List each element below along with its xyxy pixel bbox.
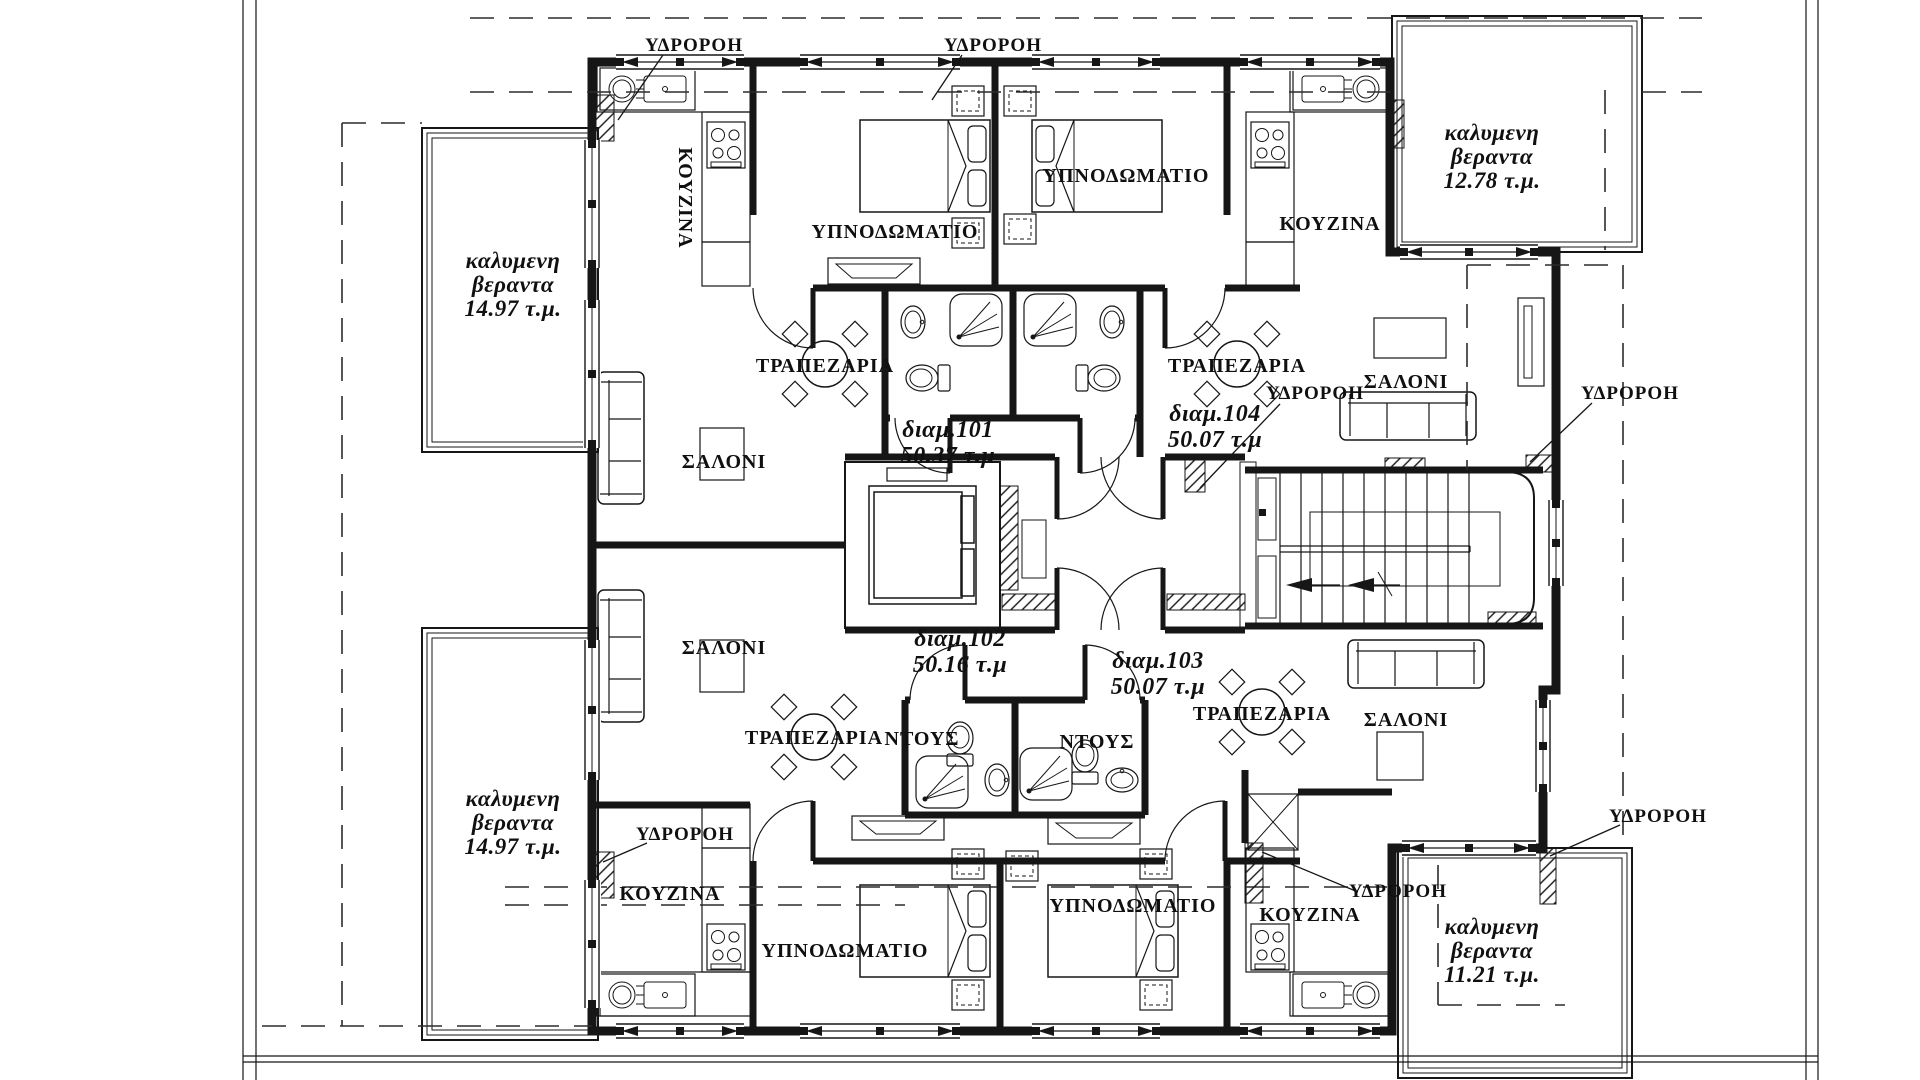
wall-hatch-pier — [1002, 594, 1055, 610]
room-label-bedroom: ΥΠΝΟΔΩΜΑΤΙΟ — [812, 221, 979, 243]
veranda-covered: καλυμενη — [466, 786, 561, 811]
tv-screen — [1524, 306, 1532, 378]
window — [1032, 1022, 1160, 1040]
veranda-label-left-bottom: καλυμενη βεραντα 14.97 τ.μ. — [465, 786, 562, 859]
room-label-shower: ΝΤΟΥΣ — [1060, 731, 1135, 753]
room-label-kitchen: ΚΟΥΖΙΝΑ — [619, 883, 720, 905]
wall-hatch-pier — [592, 95, 614, 141]
room-label-dining: ΤΡΑΠΕΖΑΡΙΑ — [1193, 703, 1331, 725]
leader-line — [1530, 403, 1592, 462]
room-label-bedroom: ΥΠΝΟΔΩΜΑΤΙΟ — [762, 940, 929, 962]
window — [583, 880, 601, 1008]
window — [1402, 839, 1536, 857]
apartment-label-104: διαμ.104 50.07 τ.μ — [1168, 401, 1263, 453]
downspout-label: ΥΔΡΟΡΟΗ — [636, 824, 734, 845]
veranda-covered: καλυμενη — [1445, 914, 1540, 939]
window — [1534, 700, 1552, 792]
veranda-covered: καλυμενη — [1445, 120, 1540, 145]
bed-apartment-101 — [860, 120, 990, 212]
door-swing — [753, 801, 813, 861]
window — [800, 1022, 960, 1040]
window — [800, 53, 960, 71]
nightstand — [952, 980, 984, 1010]
tv-on-dresser — [860, 821, 936, 834]
leader-line — [1550, 825, 1620, 856]
tv-on-dresser — [836, 264, 912, 278]
wall-hatch-pier — [1000, 486, 1018, 590]
wall-hatch-pier — [1526, 455, 1556, 472]
veranda-area: 14.97 τ.μ. — [465, 296, 562, 321]
room-label-kitchen: ΚΟΥΖΙΝΑ — [674, 147, 696, 248]
apartment-name: διαμ.103 — [1112, 648, 1204, 674]
room-label-bedroom: ΥΠΝΟΔΩΜΑΤΙΟ — [1050, 895, 1217, 917]
downspout-label: ΥΔΡΟΡΟΗ — [1581, 383, 1679, 404]
room-label-living: ΣΑΛΟΝΙ — [682, 451, 766, 473]
room-label-living: ΣΑΛΟΝΙ — [1364, 371, 1448, 393]
window — [583, 140, 601, 268]
staircase — [1240, 462, 1534, 628]
coffee-table-103 — [1377, 732, 1423, 780]
wall-hatch-pier — [1540, 848, 1556, 904]
sofa-103 — [1348, 640, 1484, 688]
apartment-label-102: διαμ.102 50.16 τ.μ — [913, 626, 1008, 678]
room-label-kitchen: ΚΟΥΖΙΝΑ — [1259, 904, 1360, 926]
sheet-border — [243, 0, 1818, 1080]
room-label-dining: ΤΡΑΠΕΖΑΡΙΑ — [745, 727, 883, 749]
room-label-kitchen: ΚΟΥΖΙΝΑ — [1279, 213, 1380, 235]
apartment-label-101: διαμ.101 50.37 τ.μ — [901, 417, 996, 469]
veranda-covered: καλυμενη — [466, 248, 561, 273]
door-swing — [1165, 801, 1225, 861]
apartment-area: 50.07 τ.μ — [1111, 674, 1206, 700]
window — [616, 1022, 744, 1040]
veranda-label-left-top: καλυμενη βεραντα 14.97 τ.μ. — [465, 248, 562, 321]
door-swing — [1080, 418, 1135, 473]
bed-apartment-102 — [860, 885, 990, 977]
bathroom-104 — [1024, 294, 1124, 391]
sofa-102 — [598, 590, 644, 722]
wardrobe — [1006, 851, 1038, 881]
veranda-word: βεραντα — [1450, 938, 1534, 963]
window — [1240, 53, 1380, 71]
elevator-shaft — [845, 462, 1000, 628]
bathroom-101 — [901, 294, 1002, 391]
window — [1547, 500, 1565, 586]
window — [583, 640, 601, 780]
kitchen-104-counter — [1246, 66, 1390, 286]
dresser — [828, 258, 920, 284]
room-label-living: ΣΑΛΟΝΙ — [1364, 709, 1448, 731]
veranda-word: βεραντα — [471, 272, 555, 297]
coffee-table-104 — [1374, 318, 1446, 358]
room-label-shower: ΝΤΟΥΣ — [885, 728, 960, 750]
tv-unit — [1518, 298, 1544, 386]
drawing-sheet: ΥΔΡΟΡΟΗ ΥΔΡΟΡΟΗ ΥΔΡΟΡΟΗ ΥΔΡΟΡΟΗ ΥΔΡΟΡΟΗ … — [0, 0, 1920, 1080]
room-label-dining: ΤΡΑΠΕΖΑΡΙΑ — [756, 355, 894, 377]
room-label-living: ΣΑΛΟΝΙ — [682, 637, 766, 659]
vanity-counter — [1048, 818, 1140, 844]
apartment-name: διαμ.104 — [1169, 401, 1261, 427]
vanity-hood — [1056, 823, 1132, 838]
downspout-label: ΥΔΡΟΡΟΗ — [1609, 806, 1707, 827]
dresser — [852, 816, 944, 840]
veranda-area: 12.78 τ.μ. — [1444, 168, 1541, 193]
veranda-word: βεραντα — [471, 810, 555, 835]
apartment-name: διαμ.102 — [914, 626, 1006, 652]
floor-plan-drawing: ΥΔΡΟΡΟΗ ΥΔΡΟΡΟΗ ΥΔΡΟΡΟΗ ΥΔΡΟΡΟΗ ΥΔΡΟΡΟΗ … — [0, 0, 1920, 1080]
veranda-area: 14.97 τ.μ. — [465, 834, 562, 859]
window — [583, 300, 601, 448]
apartment-name: διαμ.101 — [902, 417, 994, 443]
wall-hatch-pier — [1388, 100, 1404, 148]
veranda-label-top-right: καλυμενη βεραντα 12.78 τ.μ. — [1444, 120, 1541, 193]
window — [1400, 243, 1538, 261]
veranda-label-bottom-right: καλυμενη βεραντα 11.21 τ.μ. — [1444, 914, 1540, 987]
nightstand — [1140, 980, 1172, 1010]
wall-hatch-pier — [1167, 594, 1245, 610]
sofa-101 — [598, 372, 644, 504]
apartment-area: 50.37 τ.μ — [901, 443, 996, 469]
nightstand — [1004, 214, 1036, 244]
downspout-label: ΥΔΡΟΡΟΗ — [645, 35, 743, 56]
door-swing — [753, 288, 813, 348]
window — [1240, 1022, 1380, 1040]
room-label-dining: ΤΡΑΠΕΖΑΡΙΑ — [1168, 355, 1306, 377]
apartment-label-103: διαμ.103 50.07 τ.μ — [1111, 648, 1206, 700]
wall-hatch-pier — [1385, 458, 1425, 472]
room-label-bedroom: ΥΠΝΟΔΩΜΑΤΙΟ — [1043, 165, 1210, 187]
wall-hatch-pier — [1245, 843, 1263, 903]
door-swing — [1165, 288, 1225, 348]
downspout-label: ΥΔΡΟΡΟΗ — [1349, 881, 1447, 902]
leader-line — [1262, 852, 1358, 892]
downspout-label: ΥΔΡΟΡΟΗ — [1266, 383, 1364, 404]
downspout-label: ΥΔΡΟΡΟΗ — [944, 35, 1042, 56]
veranda-area: 11.21 τ.μ. — [1444, 962, 1540, 987]
apartment-area: 50.07 τ.μ — [1168, 427, 1263, 453]
entry-mat — [1022, 520, 1046, 578]
veranda-word: βεραντα — [1450, 144, 1534, 169]
nightstand — [952, 86, 984, 116]
window — [1032, 53, 1160, 71]
apartment-area: 50.16 τ.μ — [913, 652, 1008, 678]
wall-hatch-pier — [1488, 612, 1536, 626]
nightstand — [1004, 86, 1036, 116]
